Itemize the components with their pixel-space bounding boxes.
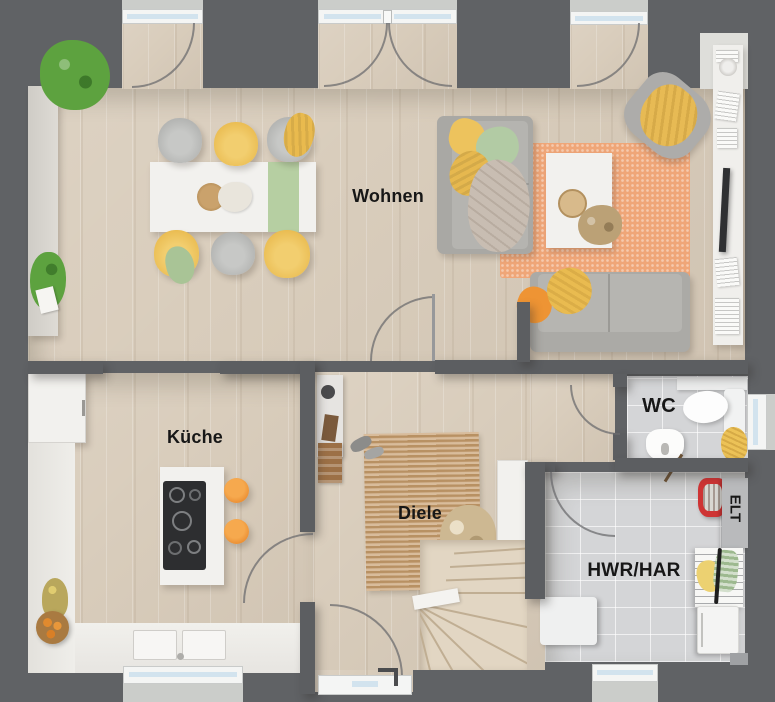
wall (28, 361, 103, 374)
stair-tread (420, 602, 527, 635)
wall-step (730, 653, 748, 665)
mop-bucket-inner (703, 484, 722, 511)
plant-icon (40, 40, 110, 110)
utility-appliance (540, 597, 597, 645)
room-label-elt: ELT (727, 479, 744, 539)
fridge-handle (82, 400, 85, 416)
fridge (28, 373, 86, 443)
window-exterior (767, 394, 775, 450)
books (717, 128, 737, 148)
window-exterior (123, 684, 243, 702)
dining-chair (211, 232, 255, 275)
dried-plant-icon (578, 205, 622, 245)
book-stack (318, 443, 342, 483)
burner-icon (169, 487, 185, 503)
wall (615, 458, 748, 472)
room-label-diele: Diele (388, 503, 452, 524)
books (714, 91, 740, 122)
door-leaf (432, 294, 435, 361)
window-glass (394, 14, 451, 19)
burner-icon (172, 511, 192, 531)
stair-tread (454, 547, 527, 554)
door-glass (352, 681, 378, 687)
stair-tread (446, 577, 527, 582)
dining-chair (214, 122, 258, 166)
room-label-hwr: HWR/HAR (578, 560, 690, 582)
floor-plan: ELT (0, 0, 775, 702)
room-label-wohnen: Wohnen (338, 186, 438, 207)
books (715, 257, 740, 287)
dining-chair (158, 118, 202, 163)
window-mullion (383, 10, 392, 24)
faucet-icon (177, 653, 184, 660)
table-runner (268, 162, 299, 232)
sofa-seam (608, 274, 610, 332)
window-exterior (592, 682, 658, 702)
sink-basin (133, 630, 177, 660)
window-glass (127, 14, 198, 19)
door-handle (394, 668, 398, 686)
stair-tread (420, 602, 522, 670)
sink-basin (182, 630, 226, 660)
hall-closet (497, 460, 528, 552)
window-glass (575, 16, 643, 21)
burner-icon (187, 540, 201, 554)
cooktop (163, 481, 206, 570)
room-label-wc: WC (637, 395, 681, 418)
bar-stool (224, 478, 249, 503)
decor-bowl (719, 58, 737, 76)
shelf-decor (321, 385, 335, 399)
stair-tread (450, 562, 527, 568)
dining-chair (264, 230, 310, 278)
room-label-kueche: Küche (158, 427, 232, 448)
wall (435, 360, 748, 374)
wall (525, 462, 545, 599)
wall (613, 433, 627, 460)
faucet-icon (661, 443, 669, 455)
towel (721, 427, 748, 462)
washing-machine (697, 606, 739, 654)
wall (300, 602, 315, 694)
wall (517, 302, 530, 362)
window-glass (324, 14, 381, 19)
fruit-bowl (36, 611, 69, 644)
burner-icon (189, 489, 201, 501)
bar-stool (224, 519, 249, 544)
washer-door-line (701, 613, 703, 647)
window-glass (753, 399, 758, 445)
window-glass (129, 672, 237, 677)
books (715, 298, 739, 334)
window-glass (597, 670, 653, 675)
burner-icon (168, 541, 182, 555)
wall (300, 361, 315, 532)
